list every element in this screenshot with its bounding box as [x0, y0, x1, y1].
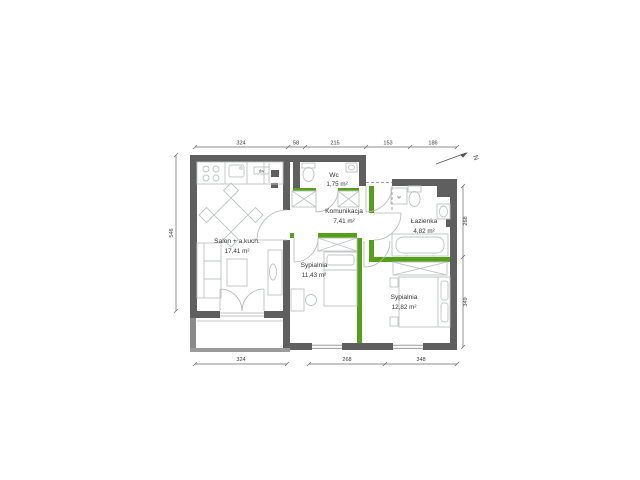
room-label-sypialnia-1: Sypialnia — [301, 262, 328, 269]
dim-right-2: 349 — [463, 297, 469, 306]
hob-burner-icon — [213, 166, 219, 172]
room-label-sypialnia-2: Sypialnia — [391, 294, 418, 301]
tv-stand — [268, 250, 282, 295]
floorplan-canvas: w dw Salon + a.kuch. 17,41 m² Komunikacj… — [0, 0, 640, 480]
dimension-labels: 324 58 215 153 186 324 268 348 546 268 3… — [169, 141, 469, 364]
north-label: N — [471, 154, 479, 161]
dim-right-1: 268 — [463, 216, 469, 225]
dim-top-1: 324 — [236, 141, 245, 147]
bed-single — [324, 252, 357, 306]
dim-bottom-2: 268 — [342, 357, 351, 363]
room-area-sypialnia-1: 11,43 m² — [302, 272, 326, 279]
sofa — [197, 243, 221, 298]
wc-toilet-icon — [302, 163, 315, 182]
dimension-lines — [174, 145, 465, 366]
room-label-lazienka: Łazienka — [411, 218, 438, 225]
dim-top-2: 58 — [293, 141, 299, 147]
room-label-salon: Salon + a.kuch. — [214, 238, 260, 245]
dim-bottom-1: 324 — [236, 357, 245, 363]
desk-and-chair — [291, 289, 317, 311]
room-area-sypialnia-2: 12,82 m² — [392, 304, 417, 311]
washer-label: w — [397, 195, 401, 200]
room-area-salon: 17,41 m² — [225, 248, 250, 255]
room-label-wc: Wc — [329, 172, 339, 179]
dining-table-icon — [214, 198, 248, 232]
balcony — [190, 318, 290, 352]
dim-top-5: 186 — [428, 141, 437, 147]
hob-burner-icon — [203, 175, 209, 181]
hob-burner-icon — [203, 166, 209, 172]
bed-double — [390, 277, 450, 327]
bath-basin-icon — [437, 204, 450, 219]
room-area-wc: 1,75 m² — [326, 181, 347, 188]
bathtub-icon — [392, 234, 448, 256]
north-arrow-icon: N — [436, 152, 479, 164]
room-area-lazienka: 4,82 m² — [413, 228, 434, 235]
dim-top-4: 153 — [383, 141, 392, 147]
floorplan-drawing: w dw Salon + a.kuch. 17,41 m² Komunikacj… — [0, 0, 640, 480]
coffee-table-icon — [227, 259, 247, 286]
meter-label: dw — [259, 168, 265, 173]
dim-top-3: 215 — [330, 141, 339, 147]
wc-basin-icon — [346, 163, 357, 172]
dim-left-1: 546 — [169, 228, 175, 237]
bath-toilet-icon — [408, 186, 421, 207]
hob-burner-icon — [213, 175, 219, 181]
dim-bottom-3: 348 — [416, 357, 425, 363]
room-area-komunikacja: 7,41 m² — [333, 218, 354, 225]
kitchen-counter — [197, 162, 283, 184]
room-label-komunikacja: Komunikacja — [325, 208, 363, 215]
